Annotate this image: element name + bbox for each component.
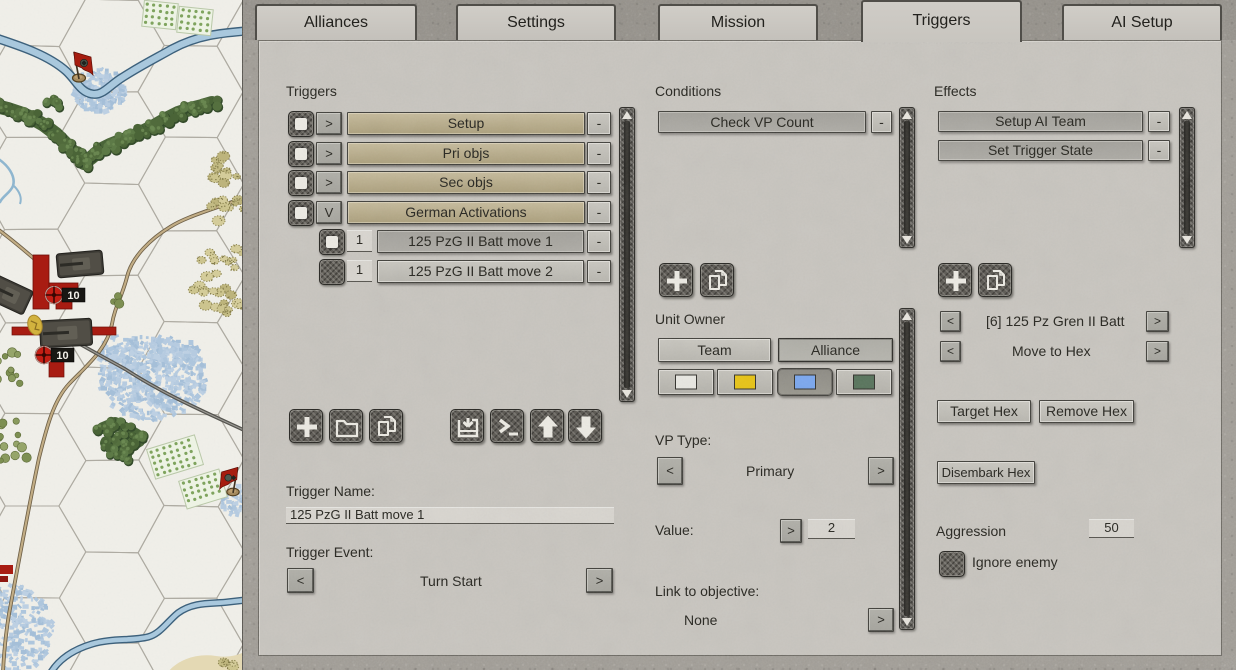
svg-text:10: 10 — [67, 290, 79, 302]
svg-text:10: 10 — [56, 350, 68, 362]
